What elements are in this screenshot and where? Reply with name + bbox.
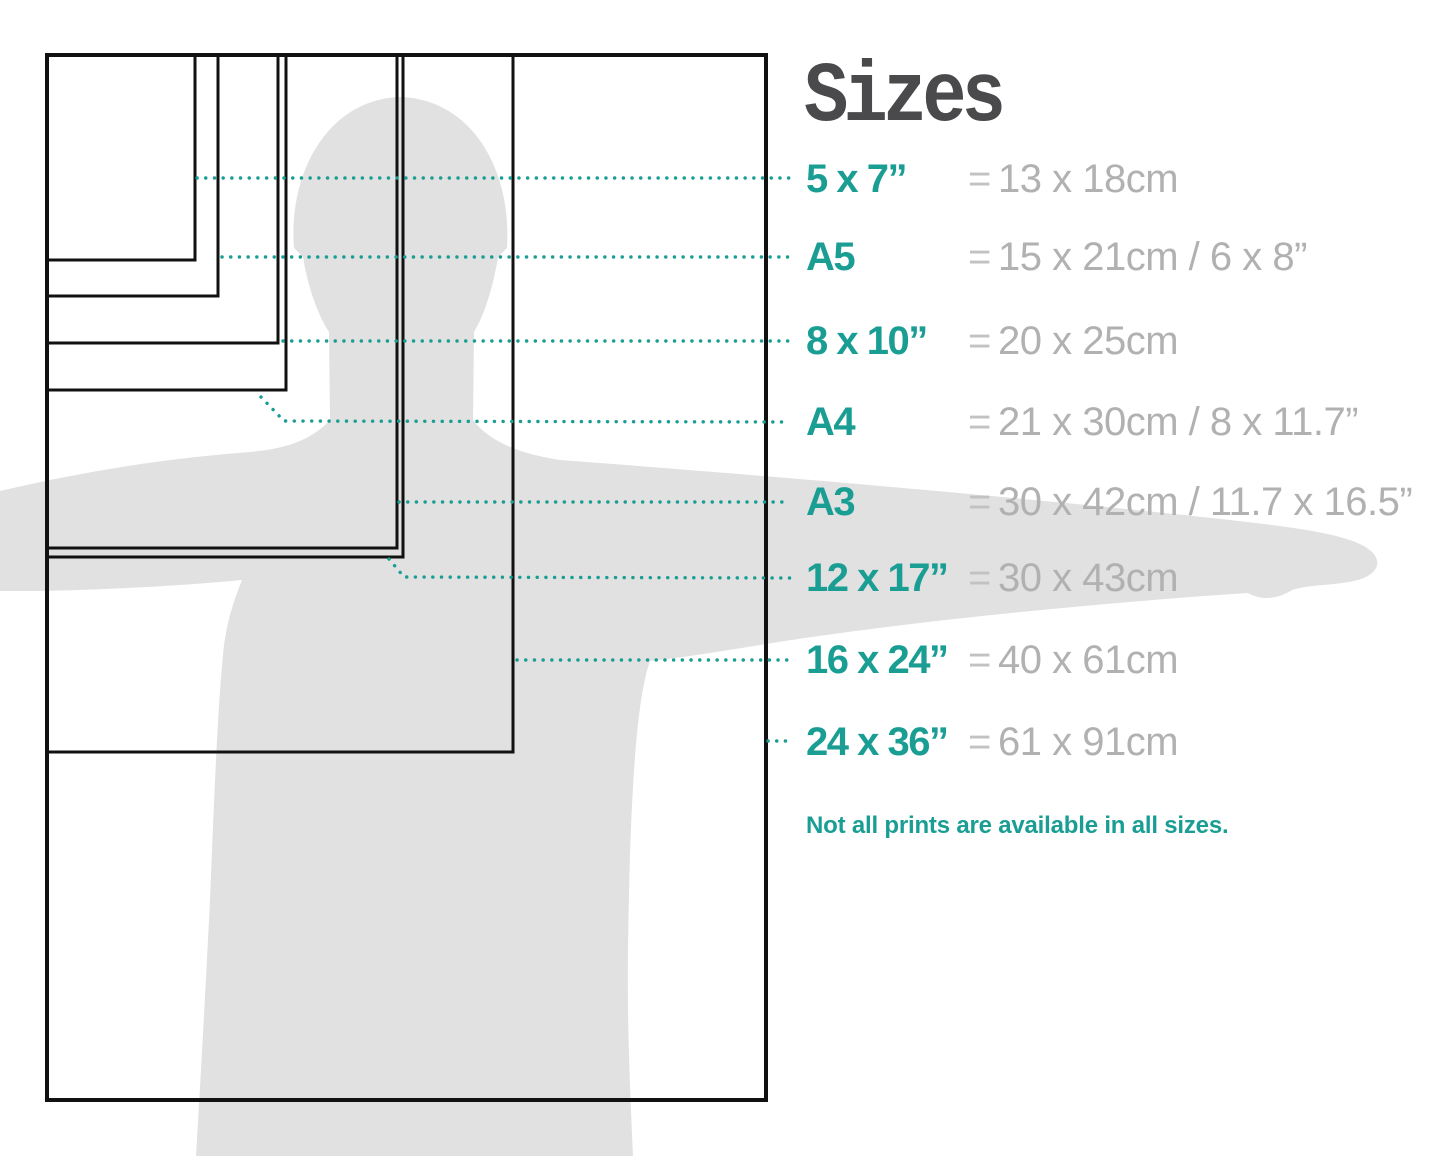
size-metric: 20 x 25cm [998,315,1178,367]
equals-sign: = [968,231,991,283]
size-diagram [0,0,1445,1156]
size-guide-infographic: Sizes 5 x 7” = 13 x 18cm A5 = 15 x 21cm … [0,0,1445,1156]
size-metric: 13 x 18cm [998,153,1178,205]
size-metric: 30 x 42cm / 11.7 x 16.5” [998,476,1412,528]
equals-sign: = [968,315,991,367]
equals-sign: = [968,153,991,205]
size-box-5x7 [47,55,195,260]
size-metric: 30 x 43cm [998,552,1178,604]
size-metric: 61 x 91cm [998,716,1178,768]
size-metric: 21 x 30cm / 8 x 11.7” [998,396,1358,448]
page-title: Sizes [804,50,1001,147]
size-box-a4 [47,55,286,390]
size-label: 8 x 10” [806,315,927,367]
size-label: A5 [806,231,854,283]
size-metric: 15 x 21cm / 6 x 8” [998,231,1307,283]
size-label: 24 x 36” [806,716,947,768]
size-label: A3 [806,476,854,528]
equals-sign: = [968,634,991,686]
equals-sign: = [968,476,991,528]
size-label: A4 [806,396,854,448]
size-box-8x10 [47,55,278,343]
size-metric: 40 x 61cm [998,634,1178,686]
availability-note: Not all prints are available in all size… [806,812,1228,840]
size-label: 5 x 7” [806,153,906,205]
size-label: 12 x 17” [806,552,947,604]
equals-sign: = [968,716,991,768]
size-label: 16 x 24” [806,634,947,686]
equals-sign: = [968,396,991,448]
equals-sign: = [968,552,991,604]
